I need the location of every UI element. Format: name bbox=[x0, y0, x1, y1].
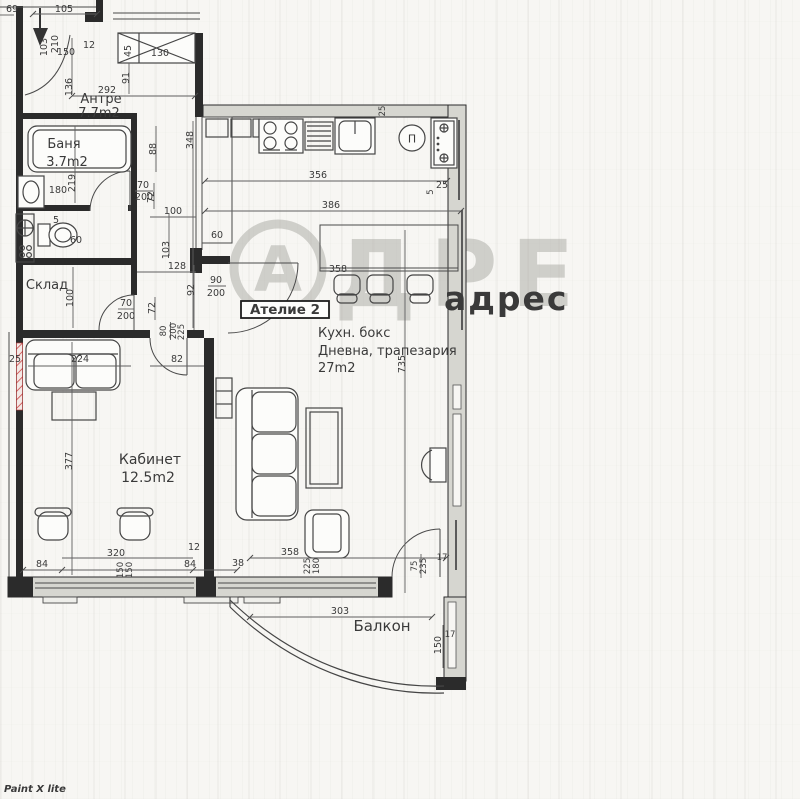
dim-label: 386 bbox=[322, 200, 340, 211]
room-area-kabinet: 12.5m2 bbox=[121, 470, 175, 486]
room-area-living: 27m2 bbox=[318, 361, 355, 376]
dim-label: 17 bbox=[445, 630, 456, 640]
room-label-balcony: Балкон bbox=[353, 617, 410, 635]
dim-label: 60 bbox=[70, 235, 82, 246]
dim-label: 348 bbox=[185, 131, 196, 149]
dim-label: 219 bbox=[67, 174, 78, 192]
dim-label: 90 bbox=[210, 275, 222, 286]
dim-label: 84 bbox=[36, 559, 48, 570]
dim-label: 12 bbox=[188, 542, 200, 553]
room-label-living-2: Дневна, трапезария bbox=[318, 344, 457, 359]
fridge bbox=[431, 118, 457, 168]
dim-label: 150 bbox=[433, 636, 444, 654]
dim-label: 69 bbox=[6, 4, 18, 15]
dish-drainer bbox=[305, 122, 333, 150]
room-area-bath: 3.7m2 bbox=[46, 155, 88, 170]
dim-label: 60 bbox=[211, 230, 223, 241]
dim-label: 358 bbox=[329, 264, 347, 275]
room-label-kabinet: Кабинет bbox=[119, 452, 181, 468]
dim-label: 320 bbox=[107, 548, 125, 559]
unit-badge-label: Ателие 2 bbox=[250, 302, 320, 318]
dim-label: 356 bbox=[309, 170, 327, 181]
floorplan-page: А ДРЕ bbox=[0, 0, 800, 799]
dim-label: 100 bbox=[65, 289, 76, 307]
tv-stand bbox=[422, 448, 446, 482]
dim-label: 103 bbox=[39, 38, 50, 56]
dim-label: 70 bbox=[120, 298, 132, 309]
window-sill bbox=[244, 597, 280, 603]
dim-label: 235 bbox=[419, 558, 429, 574]
dim-label: 25 bbox=[9, 354, 21, 365]
dim-label: 210 bbox=[50, 35, 61, 53]
window-sill bbox=[43, 597, 77, 603]
bath-sink bbox=[18, 176, 44, 208]
dim-label: 100 bbox=[164, 206, 182, 217]
dim-label: 5 bbox=[426, 189, 436, 194]
dim-label: 5 bbox=[53, 215, 59, 226]
dim-label: 303 bbox=[331, 606, 349, 617]
dim-label: 150 bbox=[125, 562, 135, 578]
editor-watermark: Paint X lite bbox=[4, 784, 66, 795]
bath-door-arc bbox=[90, 171, 130, 211]
dim-label: 200 bbox=[117, 311, 135, 322]
floorplan-drawing: А ДРЕ bbox=[0, 0, 800, 799]
dim-label: 180 bbox=[312, 558, 322, 574]
kitchen-sink bbox=[335, 118, 375, 154]
dim-label: 136 bbox=[64, 78, 75, 96]
dim-label: 25 bbox=[436, 180, 448, 191]
dim-label: 292 bbox=[98, 85, 116, 96]
dim-label: 225 bbox=[177, 324, 187, 340]
dim-label: 128 bbox=[168, 261, 186, 272]
dim-label: 12 bbox=[83, 40, 95, 51]
dim-label: 84 bbox=[184, 559, 196, 570]
dim-label: 72 bbox=[146, 191, 157, 203]
dim-label: 25 bbox=[378, 106, 388, 117]
kitchen-cabinets bbox=[202, 117, 259, 243]
dim-label: 180 bbox=[49, 185, 67, 196]
armchair bbox=[305, 510, 349, 558]
dim-label: 92 bbox=[186, 284, 197, 296]
dim-label: 103 bbox=[161, 241, 172, 259]
dim-label: 82 bbox=[171, 354, 183, 365]
washer-label: П bbox=[408, 133, 416, 146]
living-sofa bbox=[236, 388, 298, 520]
brand-small-text: адрес bbox=[444, 279, 569, 318]
brand-circle-letter: А bbox=[254, 233, 302, 306]
desk-chair bbox=[117, 508, 153, 540]
dim-label: 45 bbox=[123, 45, 134, 57]
washing-machine: П bbox=[399, 125, 425, 151]
dim-label: 38 bbox=[232, 558, 244, 569]
room-label-sklad: Склад bbox=[26, 278, 68, 293]
dim-label: 72 bbox=[147, 302, 158, 314]
kabinet-sofa bbox=[26, 340, 120, 390]
dim-label: 200 bbox=[207, 288, 225, 299]
dim-label: 70 bbox=[137, 180, 149, 191]
dim-label: 105 bbox=[55, 4, 73, 15]
room-area-antre: 7.7m2 bbox=[78, 106, 120, 121]
room-label-living-1: Кухн. бокс bbox=[318, 326, 390, 341]
unit-badge: Ателие 2 bbox=[241, 301, 329, 318]
dim-label: 88 bbox=[148, 143, 159, 155]
dim-label: 91 bbox=[121, 72, 132, 84]
desk-chair bbox=[35, 508, 71, 540]
stove bbox=[259, 119, 303, 153]
dim-label: 17 bbox=[437, 553, 448, 563]
dim-label: 735 bbox=[397, 355, 408, 373]
dim-label: 377 bbox=[64, 452, 75, 470]
radiator bbox=[216, 378, 232, 418]
dim-label: 80 bbox=[159, 326, 169, 337]
dim-label: 130 bbox=[151, 48, 169, 59]
dim-label: 358 bbox=[281, 547, 299, 558]
room-label-bath: Баня bbox=[47, 137, 80, 152]
coffee-table bbox=[306, 408, 342, 488]
kabinet-table bbox=[52, 392, 96, 420]
dim-label: 224 bbox=[71, 354, 89, 365]
